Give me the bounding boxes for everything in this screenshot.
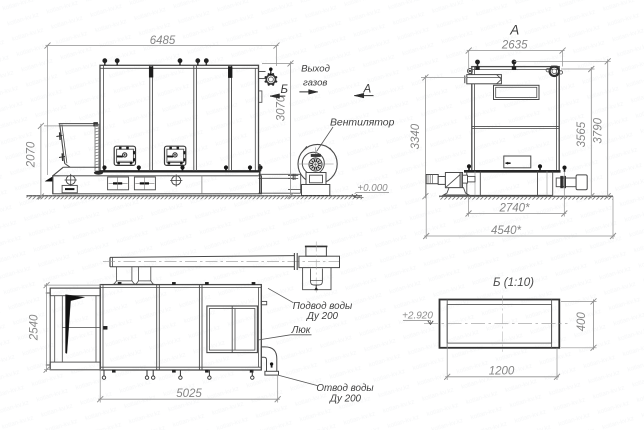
svg-text:А: А (509, 23, 519, 38)
svg-text:5025: 5025 (176, 388, 202, 400)
svg-text:Вентилятор: Вентилятор (330, 118, 395, 129)
svg-text:2070: 2070 (26, 141, 38, 168)
svg-text:3340: 3340 (410, 123, 422, 149)
svg-text:3565: 3565 (576, 121, 588, 147)
svg-text:+2.920: +2.920 (402, 310, 433, 321)
svg-text:2740*: 2740* (498, 202, 530, 214)
svg-text:3070: 3070 (275, 95, 287, 121)
svg-text:400: 400 (576, 312, 588, 332)
svg-text:Б (1:10): Б (1:10) (493, 276, 534, 289)
svg-text:Выход: Выход (301, 64, 330, 75)
svg-text:2540: 2540 (28, 314, 40, 341)
svg-text:1200: 1200 (489, 365, 515, 377)
svg-text:Люк: Люк (291, 325, 311, 336)
svg-text:Ду 200: Ду 200 (306, 311, 339, 322)
svg-text:2635: 2635 (501, 40, 528, 52)
svg-text:газов: газов (303, 77, 327, 88)
svg-text:4540*: 4540* (491, 225, 522, 237)
svg-text:Ду 200: Ду 200 (329, 393, 362, 404)
svg-text:Б: Б (281, 84, 289, 96)
svg-text:3790: 3790 (593, 117, 605, 143)
svg-text:6485: 6485 (150, 35, 176, 47)
